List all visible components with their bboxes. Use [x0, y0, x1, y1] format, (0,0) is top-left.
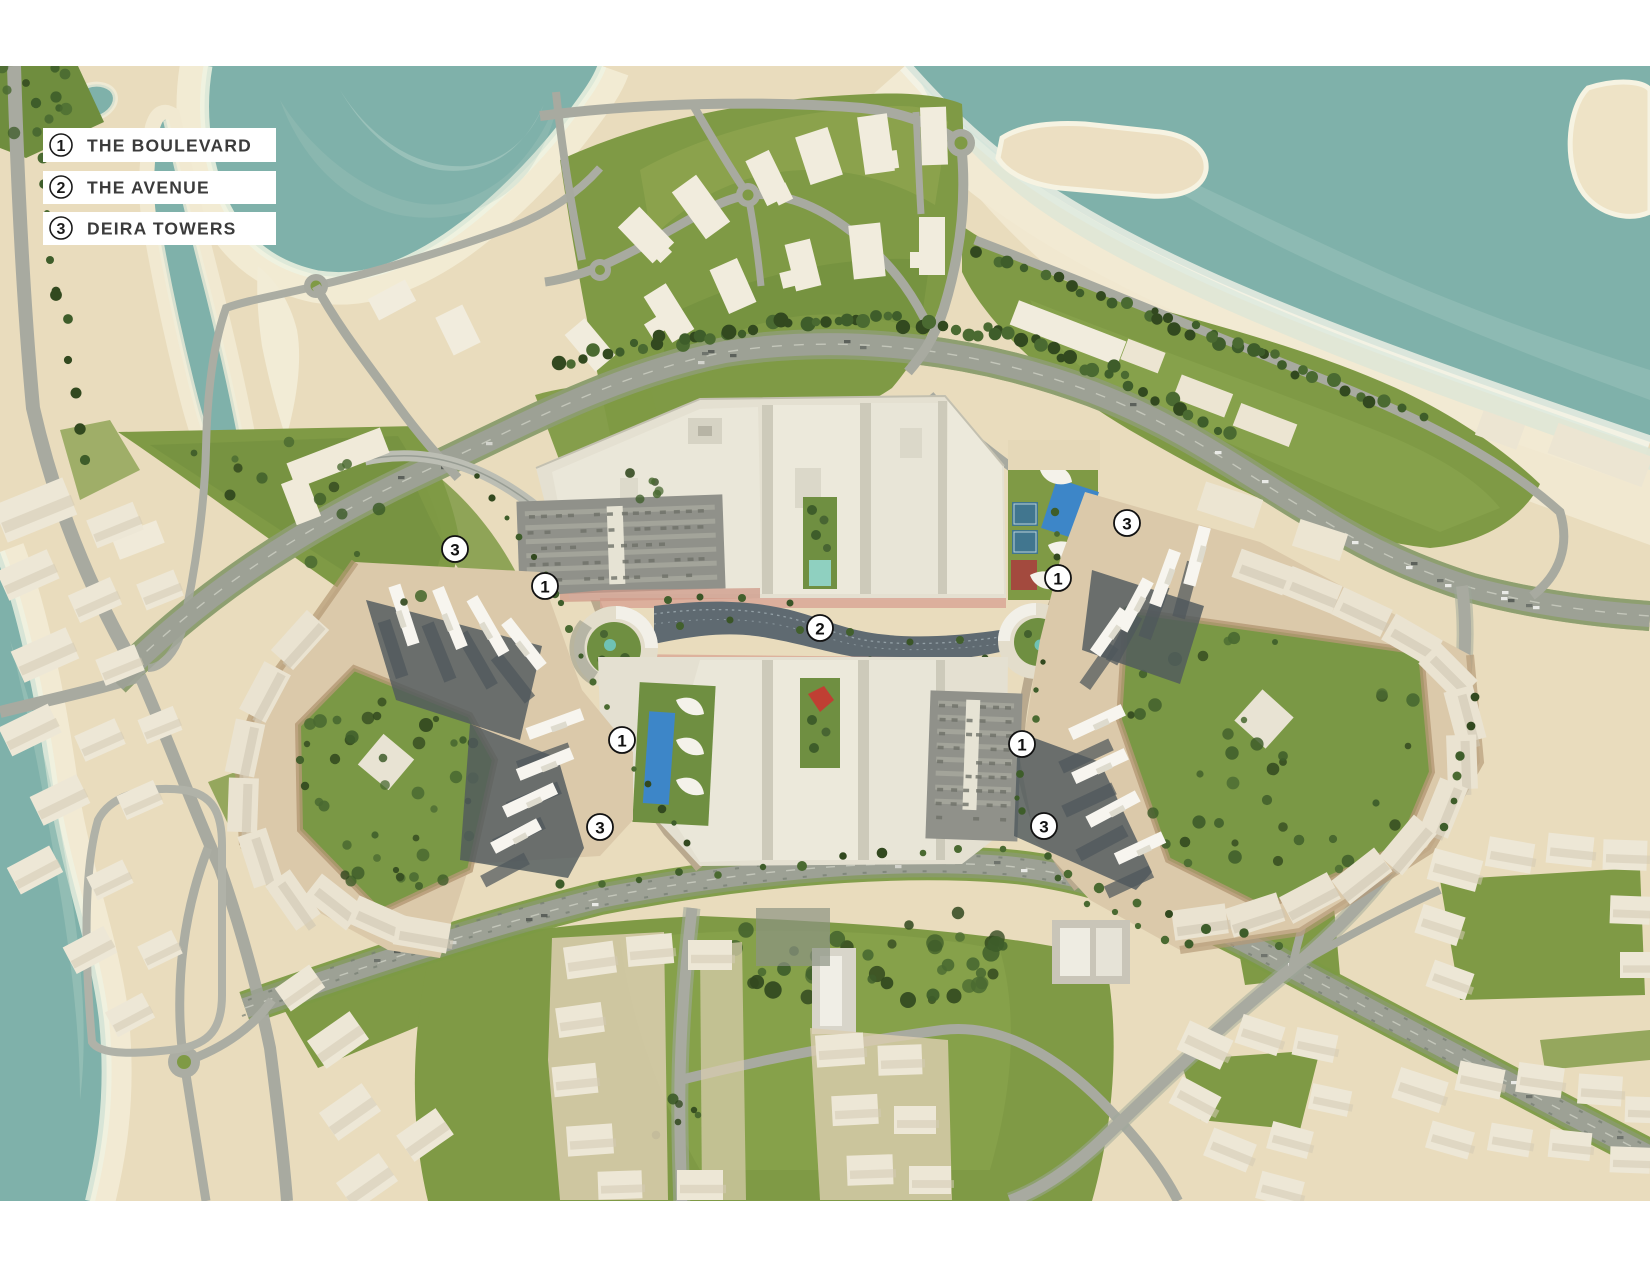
svg-text:1: 1	[1017, 736, 1026, 755]
svg-text:1: 1	[57, 138, 66, 155]
svg-text:3: 3	[595, 819, 604, 838]
svg-text:3: 3	[1122, 515, 1131, 534]
svg-text:3: 3	[57, 221, 66, 238]
svg-text:1: 1	[540, 578, 549, 597]
svg-text:THE AVENUE: THE AVENUE	[87, 178, 210, 198]
svg-text:2: 2	[57, 180, 66, 197]
svg-text:DEIRA TOWERS: DEIRA TOWERS	[87, 219, 237, 239]
svg-text:1: 1	[1053, 570, 1062, 589]
svg-text:3: 3	[1039, 818, 1048, 837]
svg-text:3: 3	[450, 541, 459, 560]
svg-text:THE BOULEVARD: THE BOULEVARD	[87, 136, 252, 156]
svg-text:2: 2	[815, 620, 824, 639]
svg-text:1: 1	[617, 732, 626, 751]
